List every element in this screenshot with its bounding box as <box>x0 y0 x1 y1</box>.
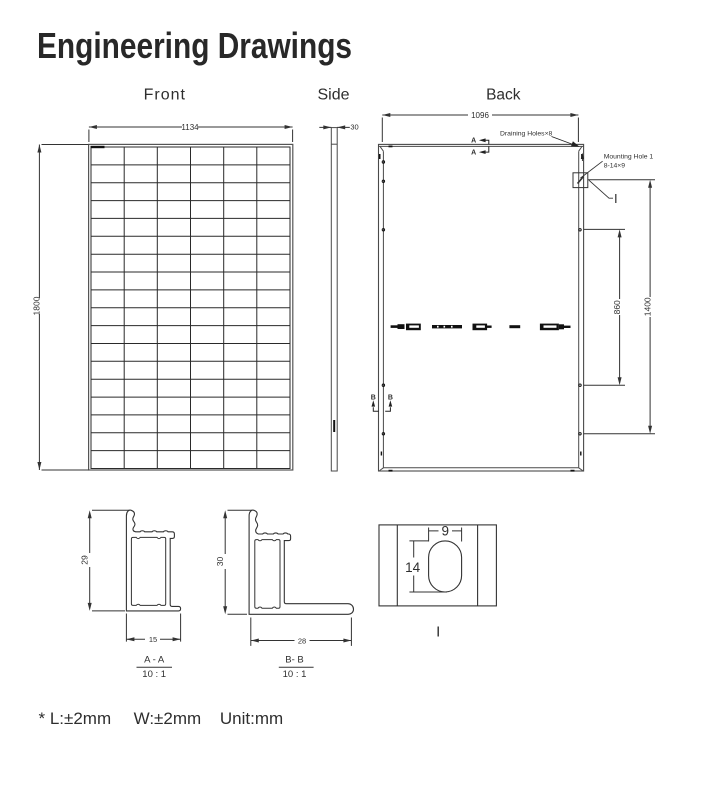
svg-text:1134: 1134 <box>181 123 199 132</box>
svg-text:Front: Front <box>144 87 186 104</box>
svg-text:I: I <box>614 191 618 206</box>
svg-text:15: 15 <box>149 635 157 644</box>
svg-text:30: 30 <box>350 123 358 132</box>
svg-text:Draining Holes×8: Draining Holes×8 <box>500 131 553 138</box>
svg-text:28: 28 <box>298 636 306 645</box>
svg-text:10 : 1: 10 : 1 <box>283 669 307 680</box>
svg-text:W:±2mm: W:±2mm <box>134 709 202 728</box>
svg-text:B- B: B- B <box>285 654 303 665</box>
svg-text:8-14×9: 8-14×9 <box>604 163 626 170</box>
svg-text:Back: Back <box>486 87 521 104</box>
svg-text:A: A <box>471 138 476 145</box>
svg-text:860: 860 <box>612 300 622 314</box>
svg-text:1400: 1400 <box>642 297 652 316</box>
svg-text:Unit:mm: Unit:mm <box>220 709 283 728</box>
svg-text:I: I <box>436 624 440 641</box>
svg-text:B: B <box>371 394 376 401</box>
svg-text:9: 9 <box>442 524 450 539</box>
svg-text:B: B <box>388 394 393 401</box>
svg-text:10 : 1: 10 : 1 <box>142 669 166 680</box>
svg-text:A: A <box>471 149 476 156</box>
svg-text:29: 29 <box>80 555 90 565</box>
svg-text:14: 14 <box>405 560 421 575</box>
svg-text:Side: Side <box>317 87 349 104</box>
svg-text:A - A: A - A <box>144 654 165 665</box>
svg-text:Mounting Hole 1: Mounting Hole 1 <box>604 154 654 161</box>
svg-text:1096: 1096 <box>471 111 489 120</box>
svg-text:1800: 1800 <box>32 296 42 315</box>
svg-text:* L:±2mm: * L:±2mm <box>39 709 112 728</box>
svg-text:30: 30 <box>215 557 225 567</box>
